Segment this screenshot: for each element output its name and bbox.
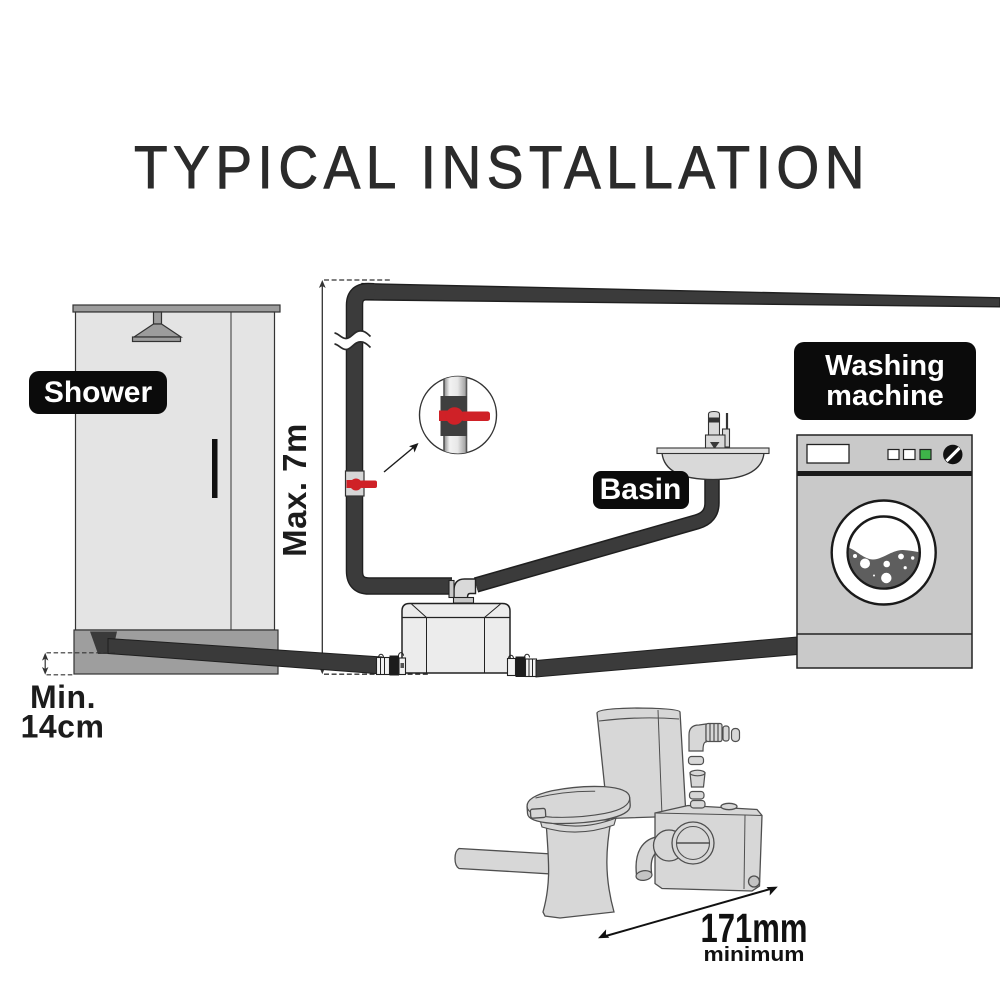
svg-text:TYPICAL INSTALLATION: TYPICAL INSTALLATION xyxy=(134,134,870,201)
svg-text:14cm: 14cm xyxy=(21,709,105,745)
svg-text:Max. 7m: Max. 7m xyxy=(276,423,313,557)
svg-text:minimum: minimum xyxy=(704,943,805,966)
